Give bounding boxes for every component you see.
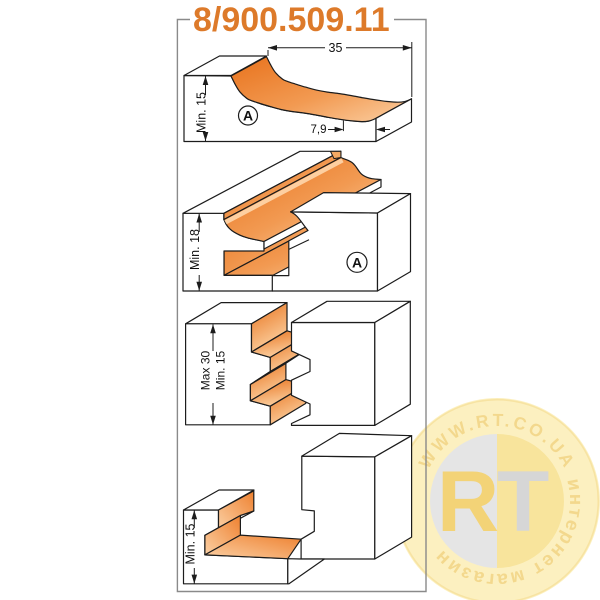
svg-text:Min. 18: Min. 18	[188, 229, 202, 270]
svg-text:35: 35	[329, 41, 343, 55]
svg-text:Min. 15: Min. 15	[214, 351, 228, 391]
svg-text:Min. 15: Min. 15	[183, 523, 197, 564]
svg-text:8/900.509.11: 8/900.509.11	[193, 1, 390, 39]
svg-text:T: T	[497, 454, 550, 550]
svg-text:A: A	[243, 108, 253, 124]
svg-text:Min. 15: Min. 15	[195, 92, 209, 133]
svg-text:Max 30: Max 30	[199, 351, 213, 391]
svg-text:7,9: 7,9	[311, 124, 327, 136]
svg-text:A: A	[352, 255, 362, 271]
svg-text:R: R	[437, 454, 499, 550]
